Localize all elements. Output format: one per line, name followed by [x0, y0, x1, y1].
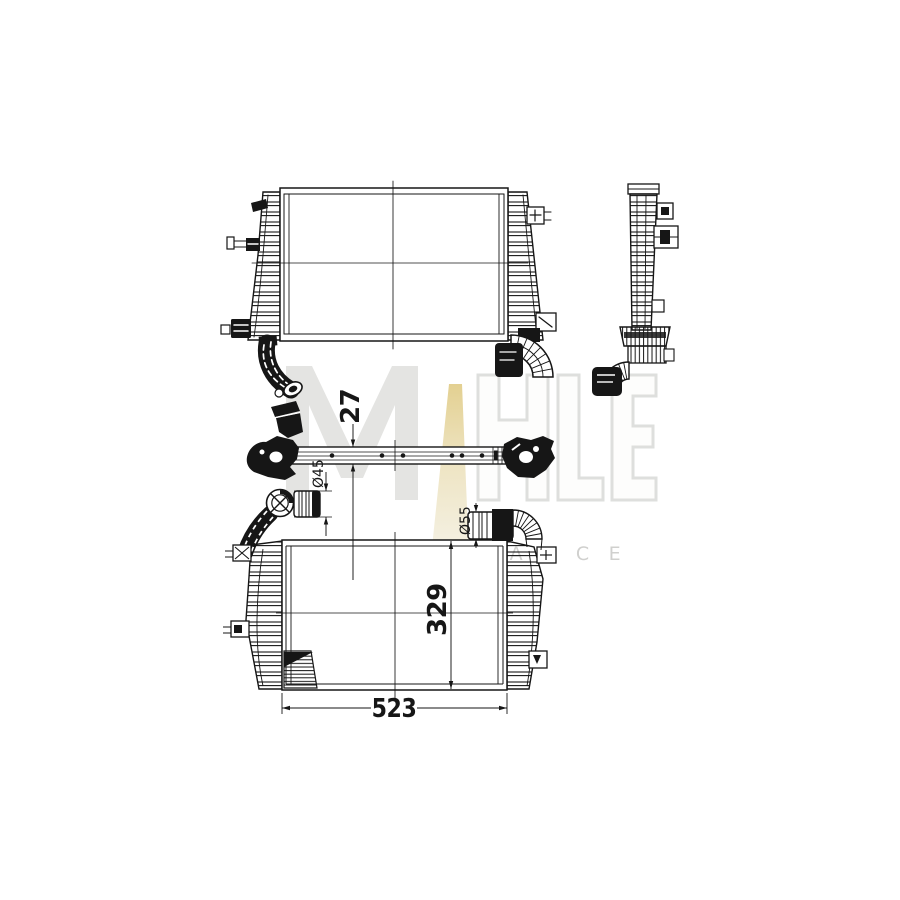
top-view-right-upper-tab — [527, 207, 551, 224]
front-view-left-lower-tab — [223, 621, 249, 637]
top-view-core — [252, 181, 528, 349]
drawing-canvas: PERFORMANCE — [0, 0, 900, 900]
product-technical-drawing: PERFORMANCE — [0, 0, 900, 900]
front-view-right-tank — [507, 541, 556, 689]
top-view-left-lower-tab — [221, 319, 251, 338]
front-view-right-lower-tab — [529, 651, 547, 668]
watermark-letter-h — [478, 375, 548, 500]
plan-thickness-label: 27 — [336, 389, 366, 424]
side-view-neck — [628, 346, 666, 363]
inlet-diameter-label: Ø45 — [311, 459, 327, 488]
front-view-left-tank — [223, 541, 282, 689]
core-width-label: 523 — [372, 693, 417, 723]
front-view-core — [276, 532, 513, 698]
dimension-core-width: 523 — [282, 693, 507, 723]
top-view-right-tank — [508, 192, 556, 342]
side-view — [592, 184, 678, 396]
watermark-letter-m — [286, 366, 418, 500]
top-view-left-tank — [221, 192, 280, 340]
front-view — [223, 490, 556, 699]
top-view — [221, 181, 556, 399]
side-view-second-tab — [654, 226, 678, 248]
front-view-right-upper-tab — [537, 547, 556, 563]
side-view-upper-tab — [657, 203, 673, 219]
core-height-label: 329 — [423, 583, 453, 636]
side-view-lower-tab — [652, 300, 664, 312]
outlet-diameter-label: Ø55 — [458, 506, 474, 535]
front-view-louver-detail — [284, 651, 317, 688]
front-view-left-upper-tab — [225, 545, 251, 561]
top-view-left-upper-tab — [227, 237, 260, 251]
